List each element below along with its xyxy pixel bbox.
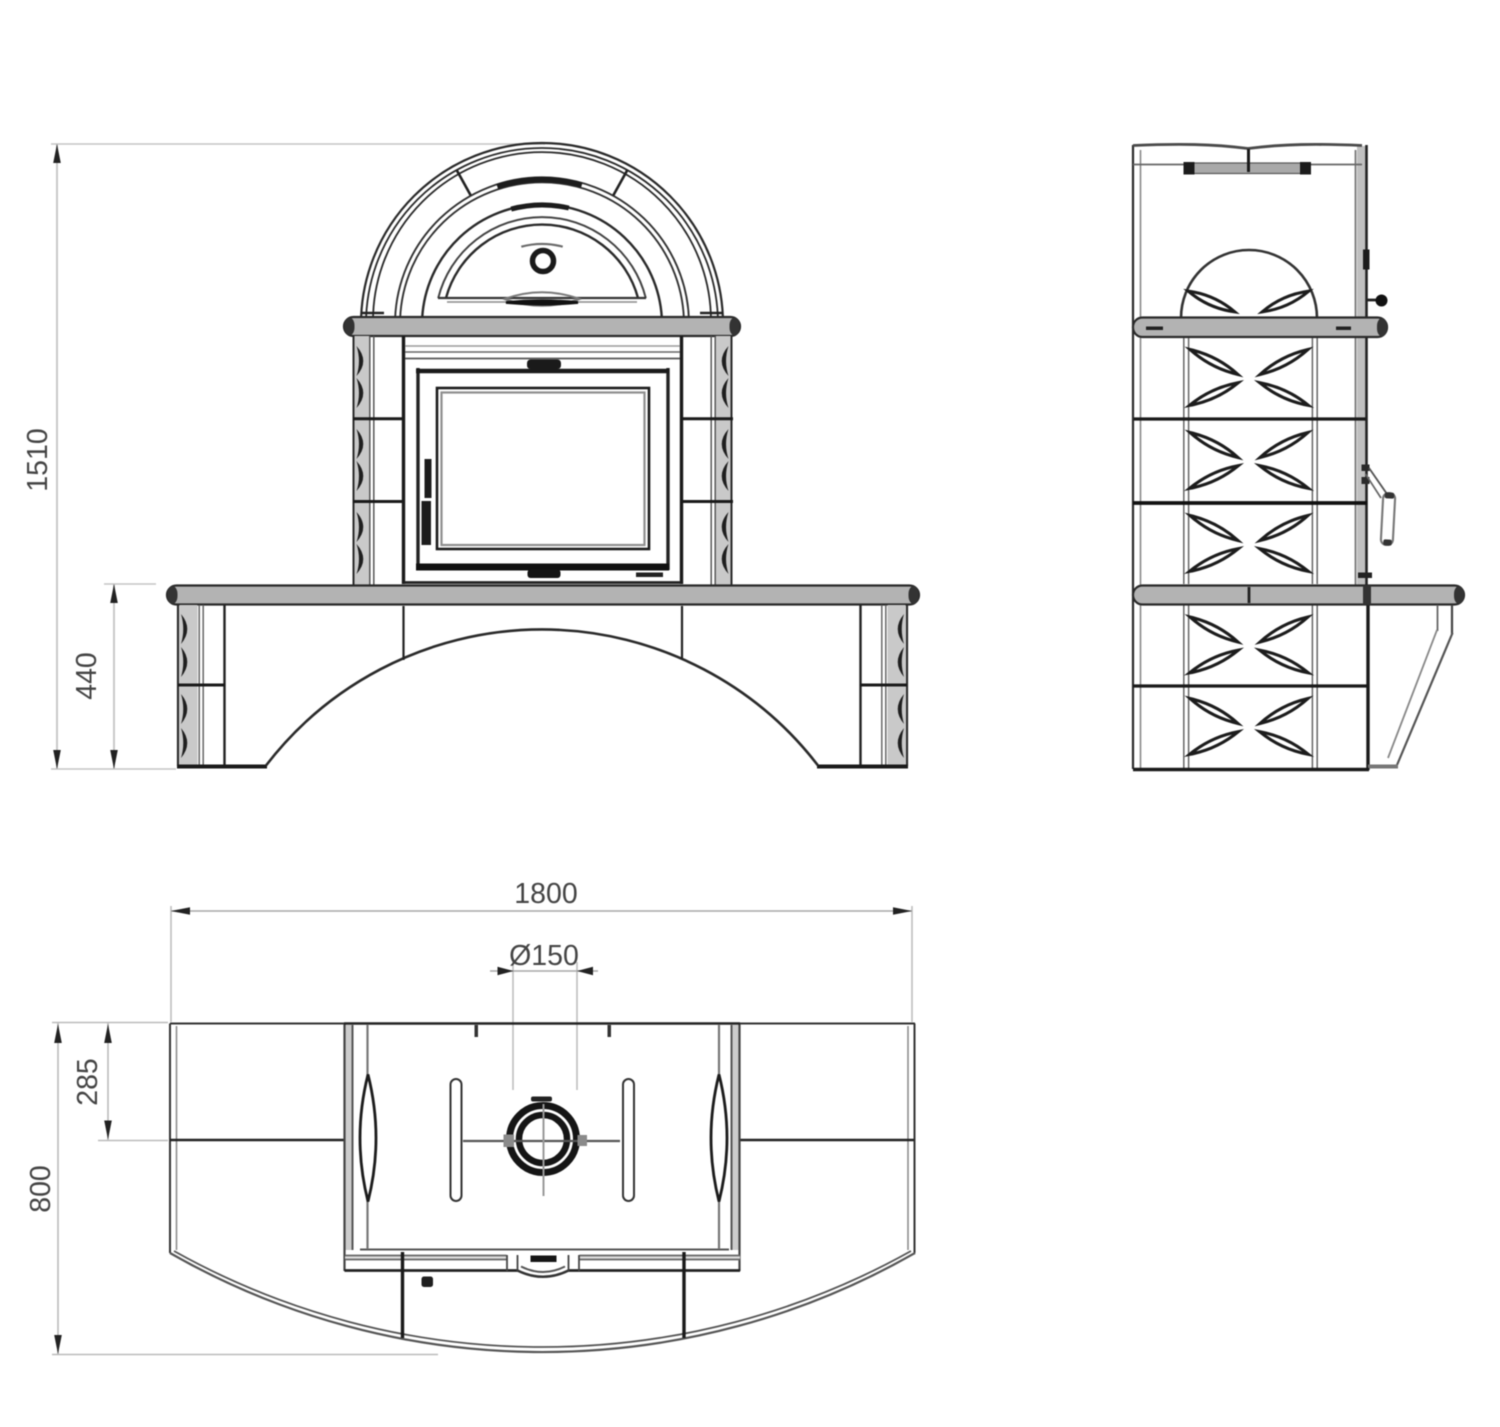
svg-text:285: 285 — [72, 1058, 104, 1106]
svg-text:1800: 1800 — [514, 878, 577, 910]
svg-text:800: 800 — [25, 1165, 57, 1213]
svg-text:1510: 1510 — [22, 428, 54, 491]
svg-text:Ø150: Ø150 — [509, 940, 579, 972]
svg-text:440: 440 — [71, 652, 103, 700]
